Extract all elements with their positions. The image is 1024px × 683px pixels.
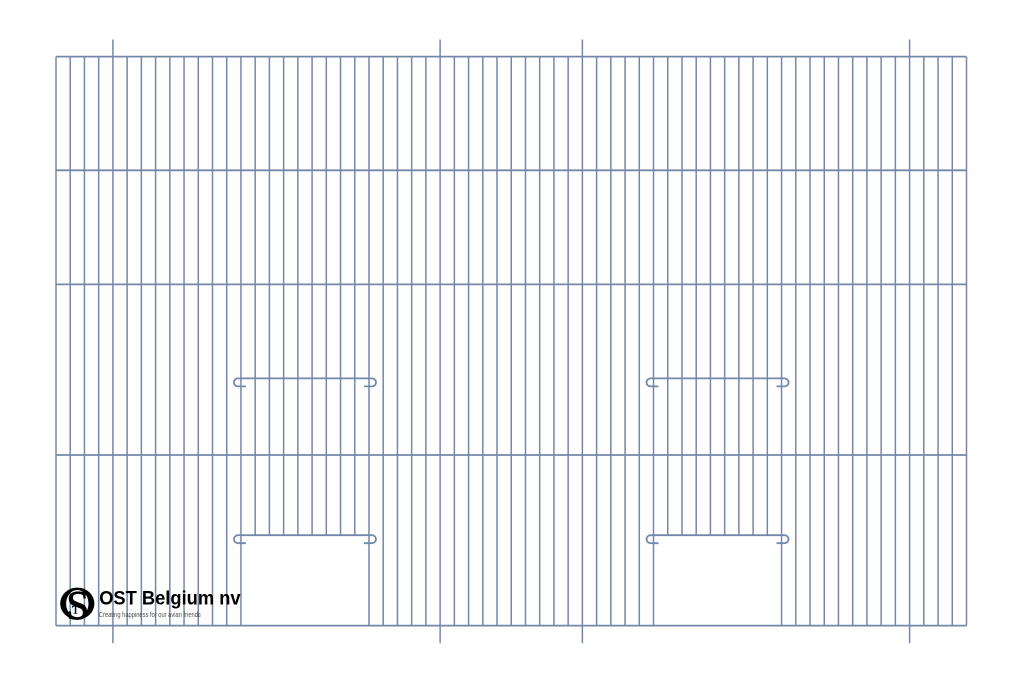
svg-text:OST Belgium nv: OST Belgium nv (99, 587, 241, 609)
svg-text:Creating happiness for our avi: Creating happiness for our avian friends (99, 610, 201, 619)
svg-text:T: T (72, 603, 80, 617)
